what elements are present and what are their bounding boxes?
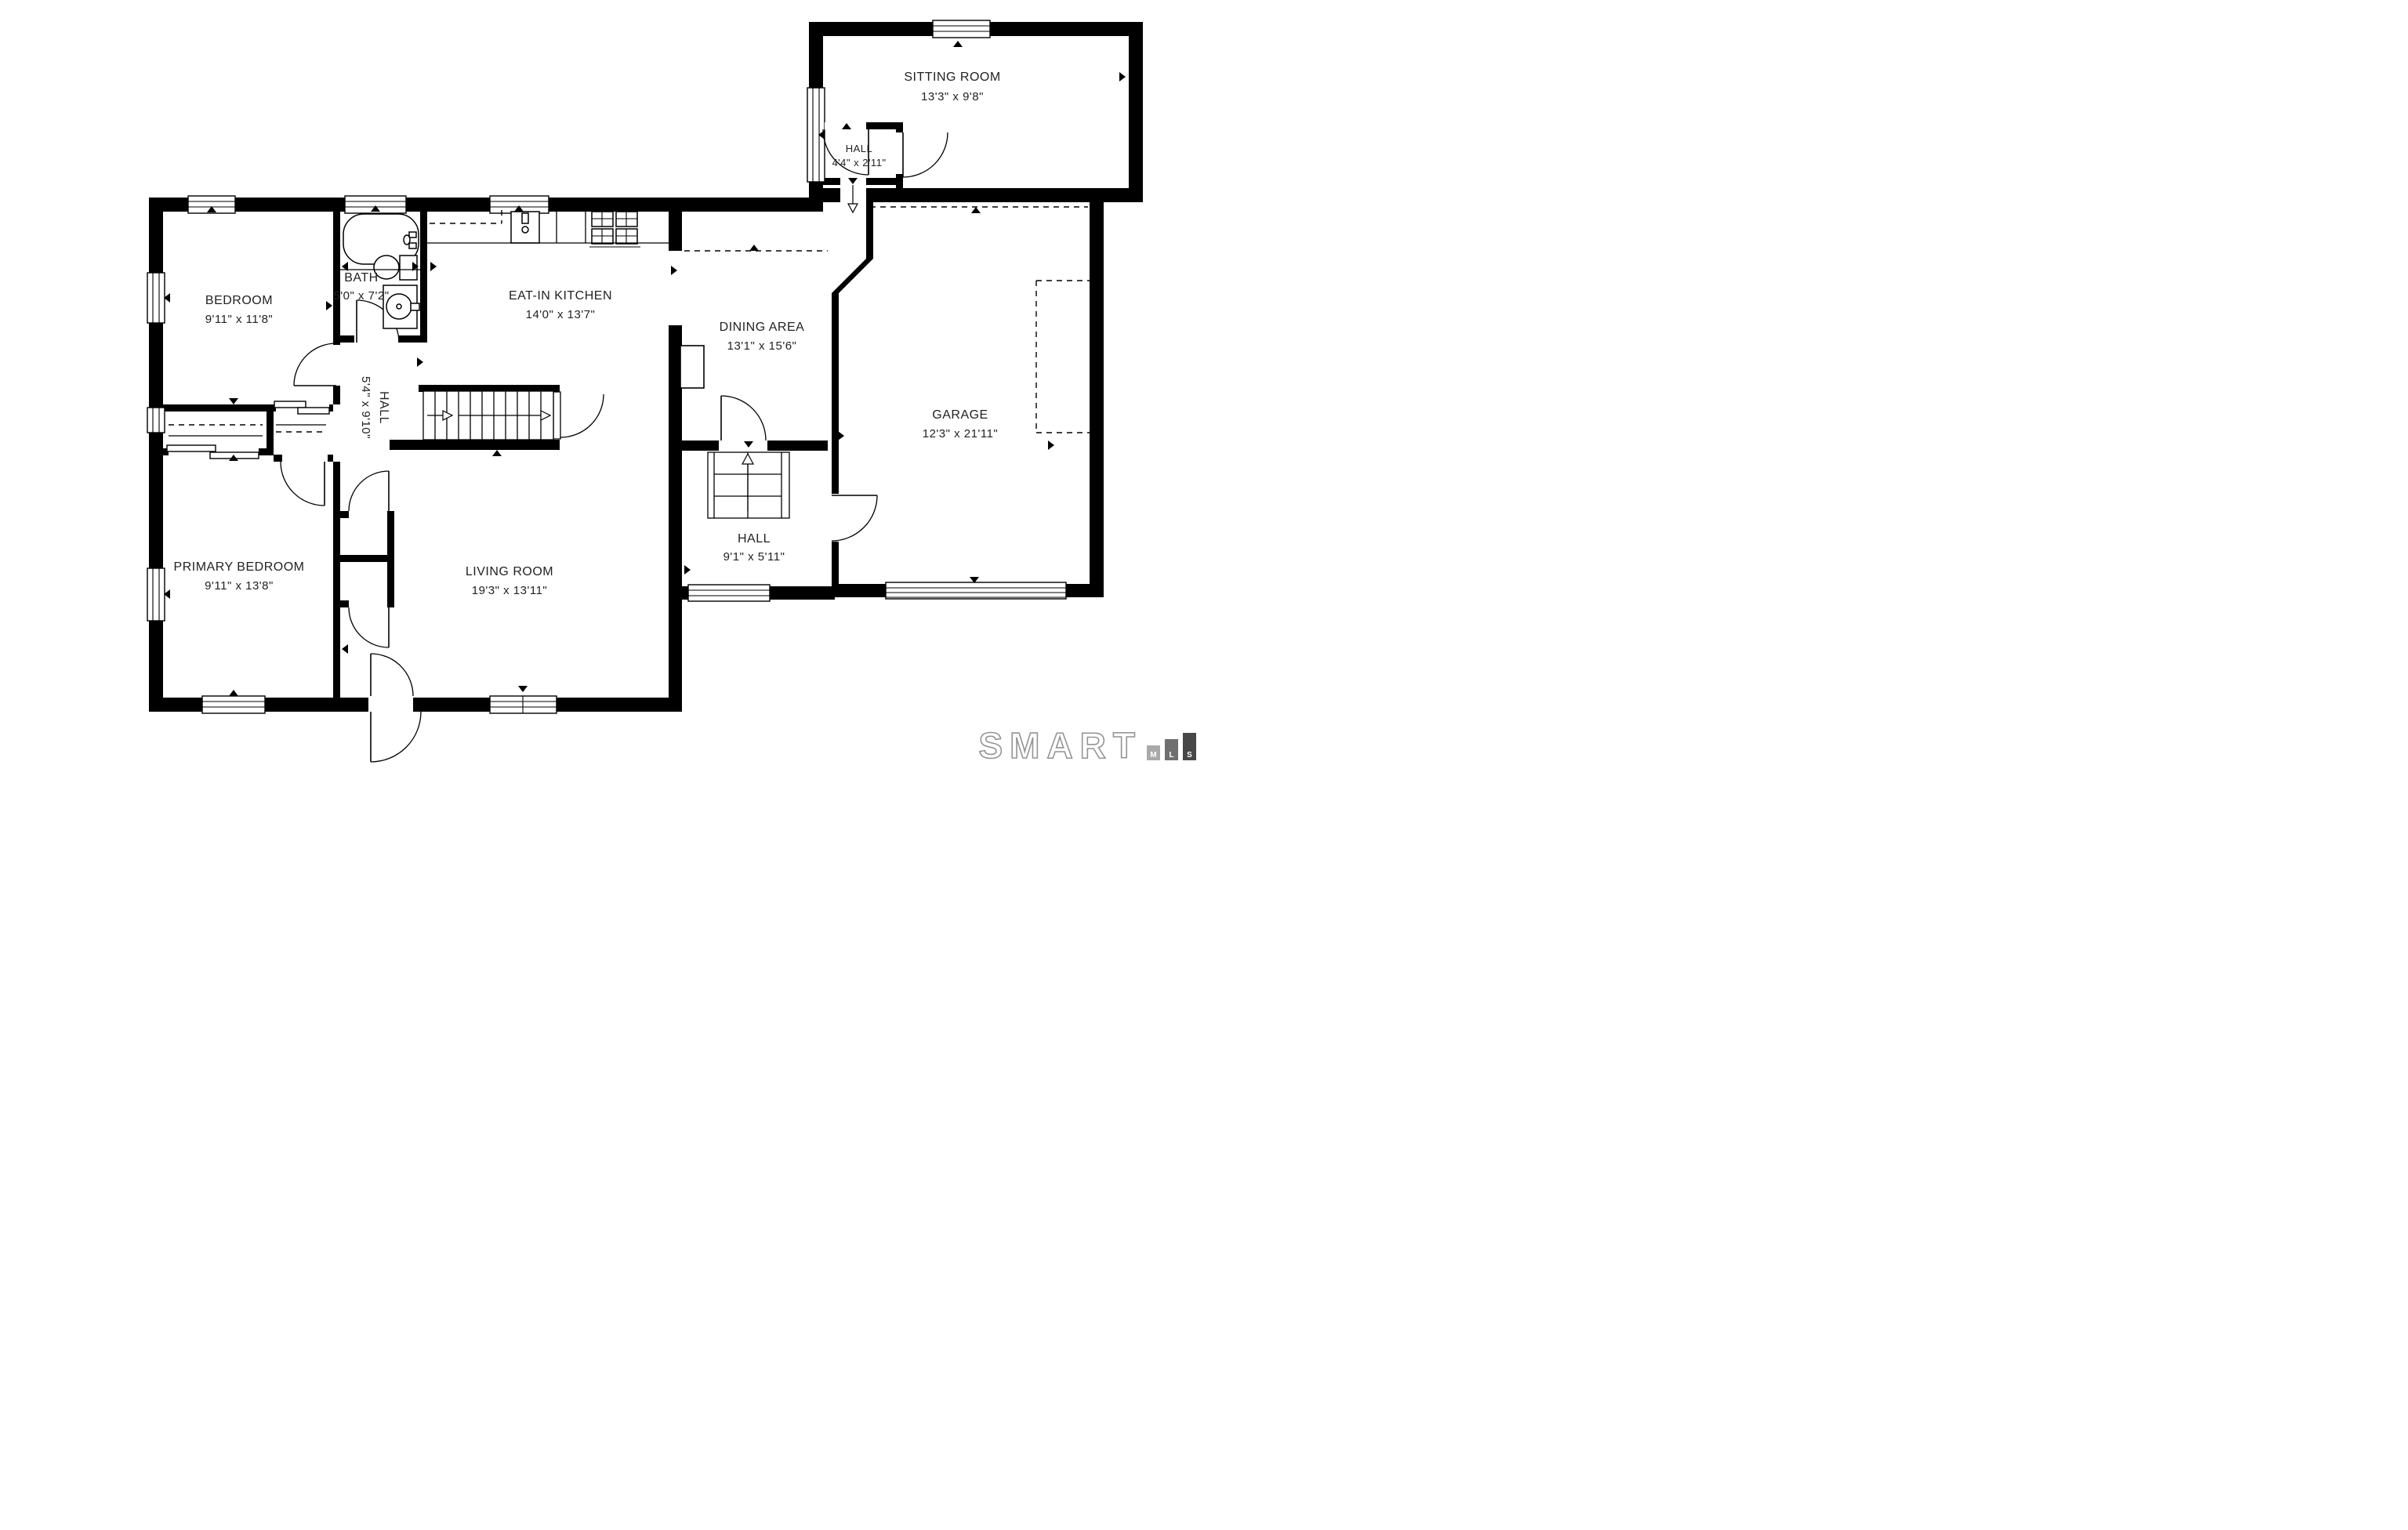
door-dining-to-hall (719, 396, 767, 451)
sliding-door-bedroom-closet (274, 401, 329, 414)
dining-niche (680, 346, 704, 388)
room-dims-sitting-room: 13'3" x 9'8" (921, 90, 984, 103)
room-label-sitting-room: SITTING ROOM (904, 71, 1000, 84)
door-bedroom (294, 343, 340, 386)
toilet (374, 256, 417, 280)
mls-block-s: S (1183, 733, 1196, 760)
windows (147, 20, 1066, 713)
room-dims-hall-center: 5'4" x 9'10" (359, 376, 372, 439)
room-label-hall-vestibule: HALL (846, 143, 873, 154)
room-dims-dining: 13'1" x 15'6" (727, 339, 797, 353)
room-labels: SITTING ROOM 13'3" x 9'8" HALL 4'4" x 2'… (174, 71, 1001, 597)
window-closet-left (147, 408, 165, 433)
floor-plan-drawing: SITTING ROOM 13'3" x 9'8" HALL 4'4" x 2'… (0, 0, 1204, 765)
room-dims-hall-lower: 9'1" x 5'11" (723, 550, 785, 564)
room-label-garage: GARAGE (932, 408, 988, 422)
smartmls-logo: SMART M L S (978, 732, 1196, 760)
room-dims-kitchen: 14'0" x 13'7" (526, 308, 596, 321)
room-dims-hall-vestibule: 4'4" x 2'11" (832, 157, 886, 169)
room-dims-living-room: 19'3" x 13'11" (472, 584, 548, 597)
window-primary-left (147, 568, 165, 621)
floor-plan: SITTING ROOM 13'3" x 9'8" HALL 4'4" x 2'… (0, 0, 1204, 765)
room-label-hall-center: HALL (377, 391, 390, 424)
window-primary-bottom (202, 696, 265, 713)
sliding-door-primary-closet (167, 445, 259, 459)
door-closet-upper (349, 471, 389, 518)
stove (589, 212, 640, 247)
garage-door (886, 582, 1066, 599)
closet-shelf-lines (169, 425, 326, 436)
door-front-entry (368, 654, 421, 762)
room-dims-bath: 5'0" x 7'2" (333, 289, 389, 303)
room-dims-bedroom: 9'11" x 11'8" (205, 313, 274, 326)
window-sitting-room-top (933, 20, 990, 38)
mls-block-m: M (1147, 745, 1160, 760)
room-dims-primary-bedroom: 9'11" x 13'8" (205, 579, 274, 593)
kitchen-sink (511, 212, 539, 243)
room-label-living-room: LIVING ROOM (466, 565, 553, 578)
window-living-bottom (490, 696, 557, 713)
door-vestibule-to-sitting-room (896, 132, 948, 177)
door-primary-bedroom (281, 455, 328, 506)
door-closet-lower (349, 600, 389, 647)
room-label-dining: DINING AREA (720, 321, 805, 334)
door-hall-to-garage (832, 494, 877, 542)
room-label-bedroom: BEDROOM (205, 294, 273, 307)
door-stair-landing (553, 392, 604, 439)
room-dims-garage: 12'3" x 21'11" (923, 427, 999, 441)
room-label-primary-bedroom: PRIMARY BEDROOM (174, 560, 305, 574)
room-label-kitchen: EAT-IN KITCHEN (509, 289, 612, 303)
mls-block-l: L (1165, 739, 1178, 760)
window-hall-bottom (688, 585, 770, 601)
room-label-bath: BATH (344, 271, 378, 285)
smart-logo-text: SMART (978, 732, 1142, 760)
window-bedroom-left (147, 273, 165, 323)
room-label-hall-lower: HALL (738, 532, 771, 546)
